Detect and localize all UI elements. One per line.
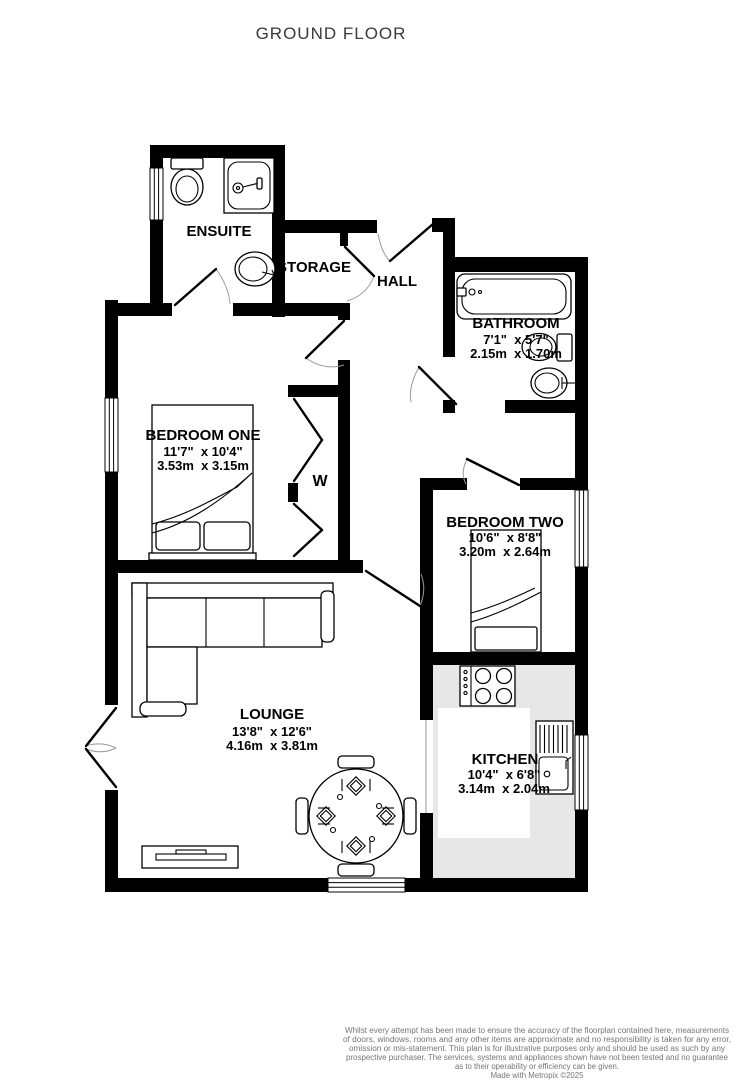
bedroom-one-dim-imperial: 11'7" x 10'4" [163, 444, 242, 459]
floorplan-svg: GROUND FLOOR [0, 0, 741, 1080]
bathtub [457, 274, 571, 319]
lounge-french-doors [86, 708, 116, 787]
disclaimer-line-4: prospective purchaser. The services, sys… [346, 1053, 728, 1062]
label-hall: HALL [377, 273, 417, 290]
disclaimer-line-3: omission or mis-statement. This plan is … [349, 1044, 725, 1053]
bathroom-dim-imperial: 7'1" x 5'7" [483, 332, 549, 347]
corner-sofa [132, 583, 334, 717]
label-lounge: LOUNGE 13'8" x 12'6" 4.16m x 3.81m [226, 706, 318, 753]
disclaimer-line-2: of doors, windows, rooms and any other i… [343, 1035, 731, 1044]
label-kitchen: KITCHEN 10'4" x 6'8" 3.14m x 2.04m [458, 751, 550, 796]
lounge-dim-metric: 4.16m x 3.81m [226, 738, 318, 753]
bathroom-dim-metric: 2.15m x 1.70m [470, 346, 562, 361]
disclaimer-line-1: Whilst every attempt has been made to en… [345, 1026, 729, 1035]
bathroom-door [410, 367, 456, 404]
kitchen-dim-imperial: 10'4" x 6'8" [468, 767, 541, 782]
bedroom-two-name: BEDROOM TWO [446, 514, 564, 531]
bedroom-one-dim-metric: 3.53m x 3.15m [157, 458, 249, 473]
floorplan-page: GROUND FLOOR [0, 0, 741, 1080]
disclaimer-line-5: as to their operability or efficiency ca… [455, 1062, 619, 1071]
disclaimer: Whilst every attempt has been made to en… [343, 1026, 731, 1080]
kitchen-window [575, 735, 588, 810]
bedroom-two-window [575, 490, 588, 567]
dining-table [296, 756, 416, 876]
kitchen-dim-metric: 3.14m x 2.04m [458, 781, 550, 796]
lounge-name: LOUNGE [240, 706, 304, 723]
page-title: GROUND FLOOR [256, 24, 407, 43]
label-bathroom: BATHROOM 7'1" x 5'7" 2.15m x 1.70m [470, 315, 562, 361]
ensuite-toilet [171, 158, 203, 205]
bedroom-one-window [105, 398, 118, 472]
ensuite-door [175, 269, 230, 305]
lounge-dim-imperial: 13'8" x 12'6" [232, 724, 312, 739]
ensuite-sink [235, 252, 276, 286]
bedroom-two-door [463, 459, 519, 485]
kitchen-name: KITCHEN [472, 751, 539, 768]
lounge-door [366, 571, 424, 606]
ensuite-window [150, 168, 163, 220]
entrance-door [378, 224, 433, 261]
label-wardrobe: W [312, 473, 328, 490]
label-ensuite: ENSUITE [186, 223, 251, 240]
lounge-window [328, 878, 405, 892]
bathroom-sink [531, 368, 575, 398]
metropix-credit: Made with Metropix ©2025 [491, 1071, 585, 1080]
shower [224, 158, 274, 213]
bedroom-two-dim-imperial: 10'6" x 8'8" [469, 530, 542, 545]
bedroom-one-name: BEDROOM ONE [145, 427, 260, 444]
bathroom-name: BATHROOM [472, 315, 559, 332]
label-storage: STORAGE [277, 259, 351, 276]
bedroom-two-dim-metric: 3.20m x 2.64m [459, 544, 551, 559]
hob [460, 666, 515, 706]
tv-unit [142, 846, 238, 868]
label-bedroom-two: BEDROOM TWO 10'6" x 8'8" 3.20m x 2.64m [446, 514, 564, 559]
